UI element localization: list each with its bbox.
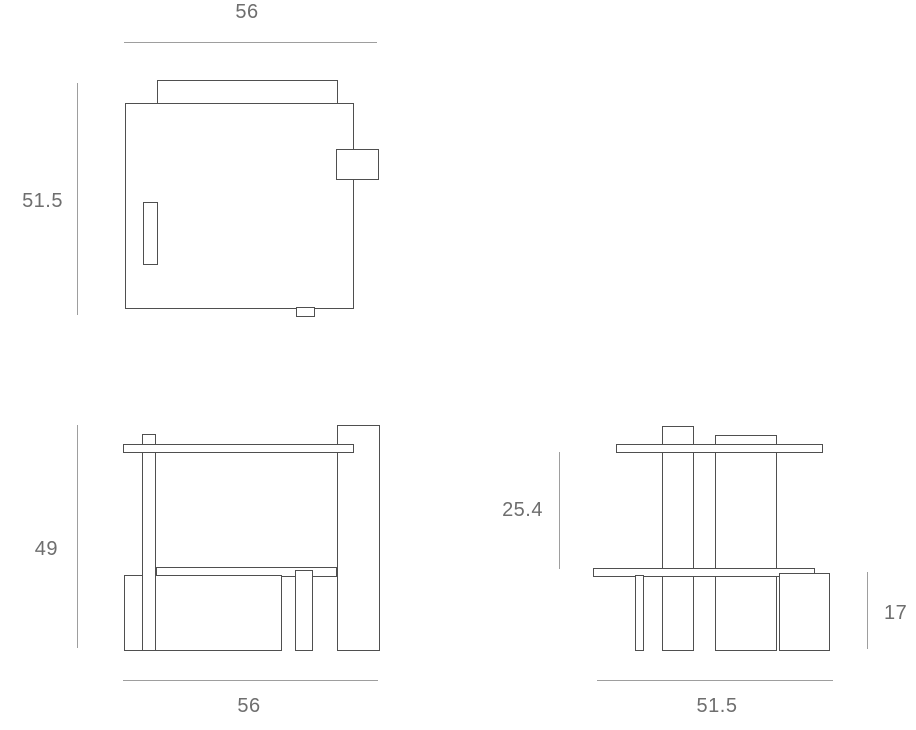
front-view-height-dim-line [77,425,78,648]
dimension-drawing: 56 51.5 49 56 25.4 17 51. [0,0,916,730]
top-view-tabletop-outline [125,103,354,309]
side-view-thin-leg [635,575,644,651]
front-view-width-dim-label: 56 [189,696,309,716]
side-view-upper-dim-line [559,452,560,569]
side-view-box-dim-label: 17 [884,603,916,623]
top-view-width-dim-line [124,42,377,43]
top-view-depth-dim-line [77,83,78,315]
side-view-box-dim-line [867,572,868,649]
front-view-side-slab [337,425,380,651]
side-view-center-slab [715,435,777,651]
side-view-tabletop-edge [616,444,823,453]
side-view-upper-dim-label: 25.4 [478,500,543,520]
front-view-front-post [295,570,313,651]
side-view-leg-post [662,426,694,651]
side-view-depth-dim-line [597,680,833,681]
front-view-tabletop-edge [123,444,354,453]
top-view-bottom-notch [296,307,315,317]
front-view-leg-post [142,434,156,651]
top-view-depth-dim-label: 51.5 [5,191,63,211]
top-view-side-tab [336,149,379,180]
front-view-height-dim-label: 49 [5,539,58,559]
top-view-back-tab [157,80,338,104]
side-view-drawer-box [779,573,830,651]
front-view-width-dim-line [123,680,378,681]
top-view-slot [143,202,158,265]
side-view-depth-dim-label: 51.5 [657,696,777,716]
top-view-width-dim-label: 56 [187,2,307,22]
